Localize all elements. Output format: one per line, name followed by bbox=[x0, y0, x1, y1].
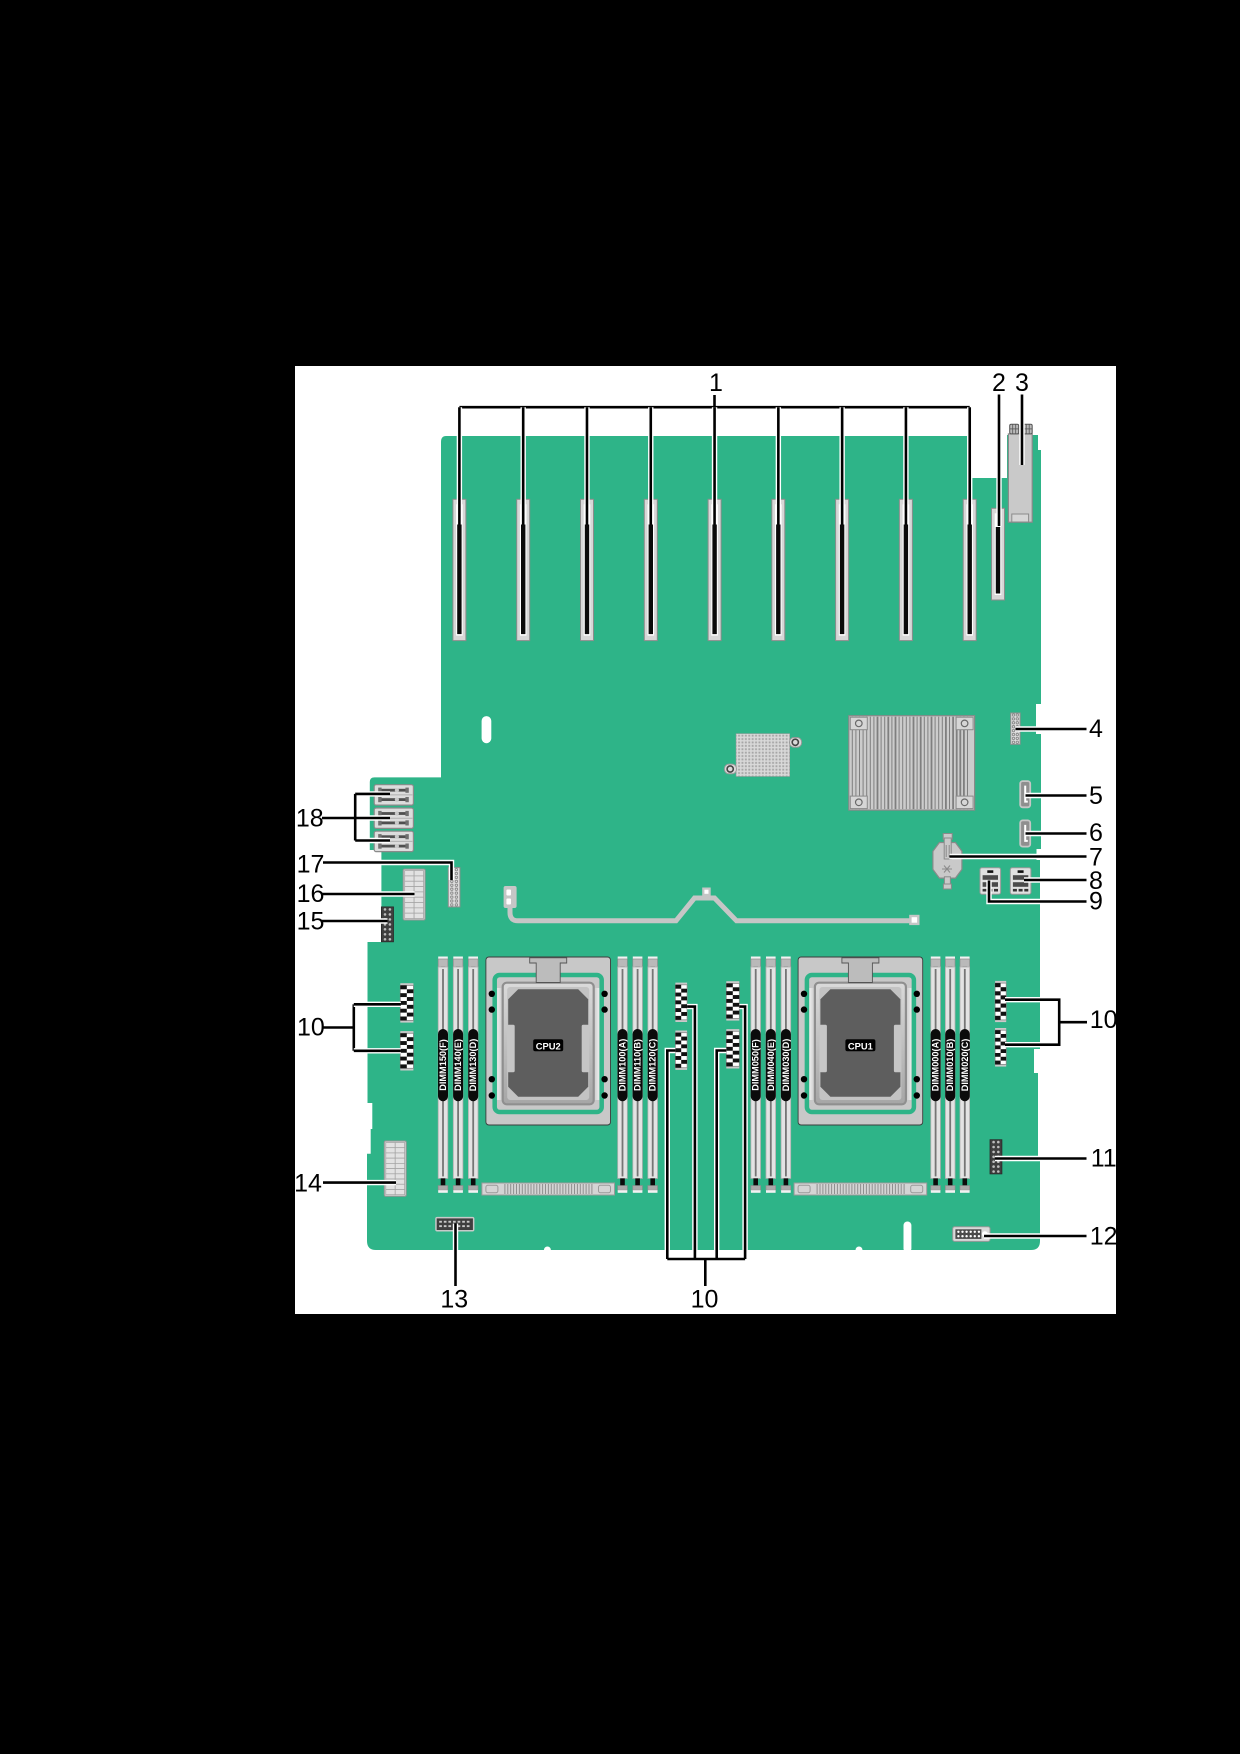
svg-text:17: 17 bbox=[297, 851, 325, 879]
svg-text:DIMM120(C): DIMM120(C) bbox=[648, 1039, 658, 1092]
svg-text:DIMM150(F): DIMM150(F) bbox=[438, 1039, 448, 1091]
svg-text:16: 16 bbox=[297, 880, 325, 908]
svg-text:18: 18 bbox=[296, 804, 324, 832]
svg-text:11: 11 bbox=[1091, 1144, 1117, 1172]
svg-text:5: 5 bbox=[1089, 782, 1103, 810]
svg-text:10: 10 bbox=[297, 1014, 325, 1042]
svg-text:13: 13 bbox=[440, 1286, 468, 1314]
svg-text:DIMM010(B): DIMM010(B) bbox=[945, 1039, 955, 1092]
svg-text:DIMM130(D): DIMM130(D) bbox=[468, 1039, 478, 1092]
svg-text:14: 14 bbox=[294, 1170, 322, 1198]
svg-text:3: 3 bbox=[1015, 369, 1029, 397]
svg-text:DIMM020(C): DIMM020(C) bbox=[960, 1039, 970, 1092]
svg-text:12: 12 bbox=[1090, 1222, 1118, 1250]
svg-text:CPU1: CPU1 bbox=[848, 1040, 873, 1051]
svg-text:CPU2: CPU2 bbox=[536, 1040, 561, 1051]
svg-text:10: 10 bbox=[691, 1286, 719, 1314]
svg-text:DIMM140(E): DIMM140(E) bbox=[453, 1039, 463, 1091]
svg-text:DIMM050(F): DIMM050(F) bbox=[751, 1039, 761, 1091]
svg-text:1: 1 bbox=[709, 369, 723, 397]
svg-text:DIMM110(B): DIMM110(B) bbox=[633, 1039, 643, 1091]
svg-text:15: 15 bbox=[297, 907, 325, 935]
svg-text:9: 9 bbox=[1089, 887, 1103, 915]
svg-text:DIMM000(A): DIMM000(A) bbox=[931, 1039, 941, 1092]
svg-text:4: 4 bbox=[1089, 715, 1103, 743]
svg-text:DIMM030(D): DIMM030(D) bbox=[781, 1039, 791, 1092]
svg-text:DIMM040(E): DIMM040(E) bbox=[766, 1039, 776, 1091]
svg-text:2: 2 bbox=[992, 369, 1006, 397]
svg-text:10: 10 bbox=[1090, 1006, 1118, 1034]
svg-text:DIMM100(A): DIMM100(A) bbox=[618, 1039, 628, 1092]
